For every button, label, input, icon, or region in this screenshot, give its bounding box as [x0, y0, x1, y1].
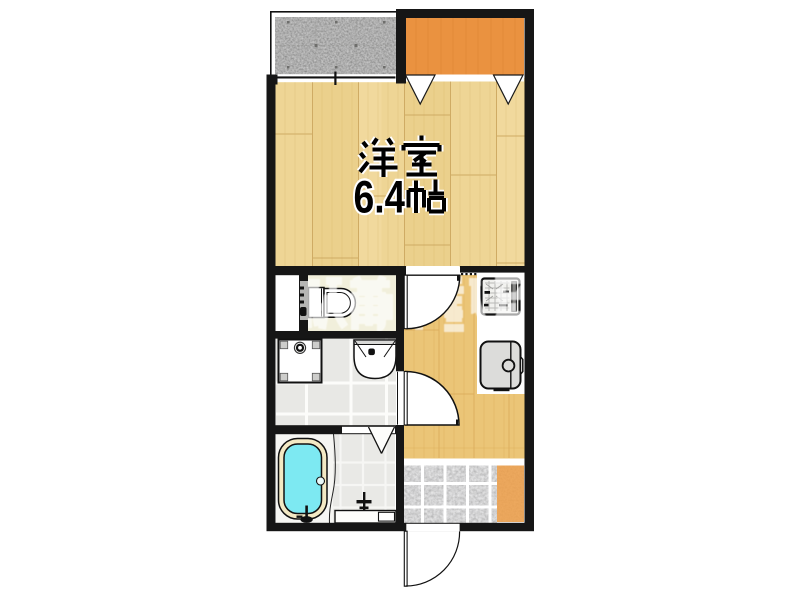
svg-text:6.4: 6.4: [354, 172, 406, 222]
